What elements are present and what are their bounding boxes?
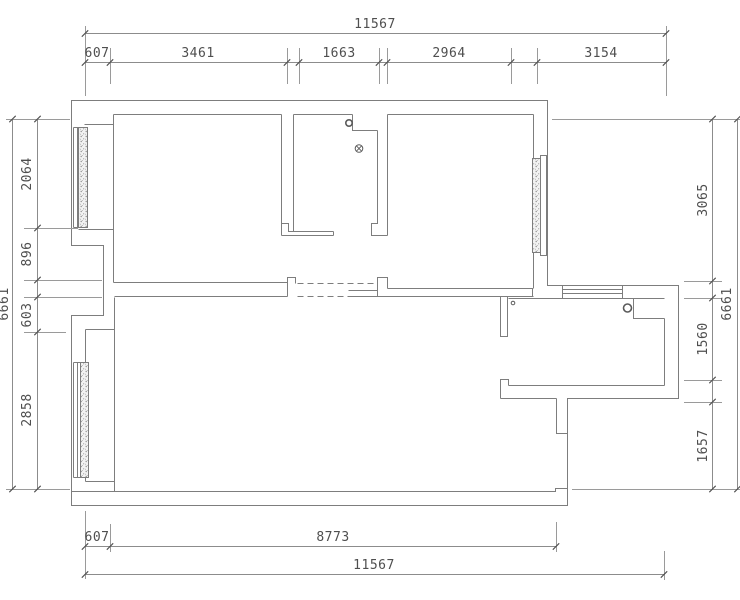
window-glazing-hatch — [79, 128, 88, 228]
floor-plan-drawing: 1156760734611663296431546661206489660328… — [0, 0, 740, 600]
drain-cross — [356, 146, 361, 151]
dim-label-bottom-seg-1: 607 — [85, 530, 110, 545]
left-wall-inner-face — [114, 115, 115, 492]
window-glazing-hatch — [81, 363, 89, 478]
pipe-riser-icon — [346, 120, 352, 126]
dim-label-top-seg-1: 607 — [85, 46, 110, 61]
window-sill — [74, 128, 79, 228]
exterior-wall-outline — [72, 101, 679, 506]
window-right-upper — [533, 156, 547, 256]
dim-label-left-seg-2: 896 — [20, 242, 35, 267]
dim-label-top-seg-4: 2964 — [432, 46, 465, 61]
small-pipe-icon — [511, 301, 515, 305]
middle-wall-left — [114, 278, 296, 297]
window-left-upper — [74, 128, 88, 228]
dim-label-left-seg-1: 2064 — [20, 157, 35, 190]
dim-label-bottom-total: 11567 — [353, 558, 395, 573]
dim-label-right-total: 6661 — [720, 287, 735, 320]
wall-pier — [378, 278, 388, 297]
dim-label-top-seg-5: 3154 — [584, 46, 617, 61]
walls — [72, 101, 679, 506]
kitchen-band-bottom — [501, 399, 568, 434]
windows — [74, 128, 547, 478]
pipe-riser-icon — [624, 304, 632, 312]
dim-label-right-seg-2: 1560 — [696, 322, 711, 355]
plan-symbols — [346, 120, 632, 312]
window-glazing-hatch — [533, 159, 541, 253]
kitchen-top-window-lines — [563, 286, 623, 299]
bath-left-wall — [282, 115, 334, 236]
living-room-bottom-inner — [72, 489, 568, 492]
pipe-riser-icon — [346, 120, 352, 126]
dim-label-top-total: 11567 — [354, 17, 396, 32]
bath-soffit — [353, 115, 378, 131]
kitchen-band-left-end — [501, 380, 509, 399]
dimension-ticks — [9, 30, 740, 577]
middle-wall-right — [349, 289, 534, 297]
lower-window-reveal — [86, 330, 115, 482]
small-pipe-icon — [511, 301, 515, 305]
dim-label-bottom-seg-2: 8773 — [316, 530, 349, 545]
floor-drain-icon — [355, 145, 363, 153]
dimension-lines — [6, 26, 740, 580]
bath-right-wall — [372, 115, 388, 236]
extension-lines-top — [86, 26, 667, 96]
dim-label-right-seg-3: 1657 — [696, 429, 711, 462]
dim-label-right-seg-1: 3065 — [696, 183, 711, 216]
window-left-lower — [74, 363, 89, 478]
floor-plan: 1156760734611663296431546661206489660328… — [0, 0, 740, 600]
dim-label-top-seg-2: 3461 — [181, 46, 214, 61]
pipe-riser-icon — [624, 304, 632, 312]
window-outer-frame — [541, 156, 547, 256]
dim-label-left-seg-4: 2858 — [20, 393, 35, 426]
kitchen-door-stub — [501, 297, 508, 337]
kitchen-interior — [509, 299, 665, 386]
window-sill — [74, 363, 81, 478]
dim-label-top-seg-3: 1663 — [322, 46, 355, 61]
dim-label-left-seg-3: 603 — [20, 303, 35, 328]
dim-label-left-total: 6661 — [0, 287, 12, 320]
extension-lines-right — [552, 120, 740, 490]
